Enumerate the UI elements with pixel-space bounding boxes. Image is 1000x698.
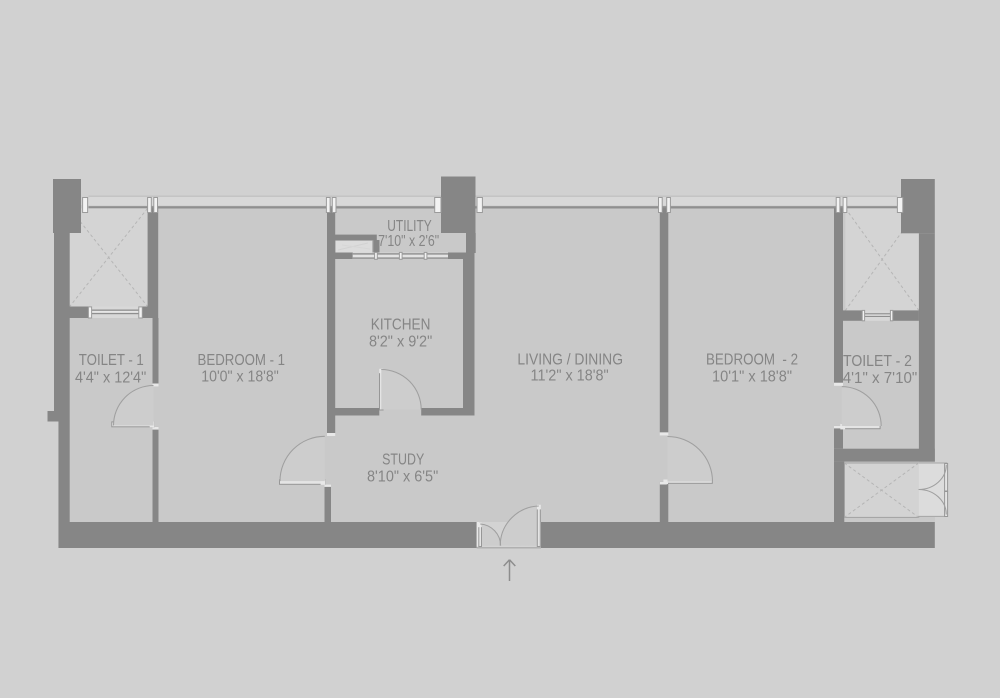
svg-text:TOILET - 1: TOILET - 1 [79, 352, 144, 369]
svg-text:BEDROOM - 1: BEDROOM - 1 [198, 352, 286, 369]
svg-text:8'2" x 9'2": 8'2" x 9'2" [369, 333, 432, 350]
svg-text:10'1" x 18'8": 10'1" x 18'8" [712, 369, 792, 386]
svg-text:4'4" x 12'4": 4'4" x 12'4" [75, 370, 146, 387]
svg-text:BEDROOM - 2: BEDROOM - 2 [706, 351, 798, 368]
svg-text:LIVING / DINING: LIVING / DINING [517, 351, 623, 368]
svg-text:4'1" x 7'10": 4'1" x 7'10" [843, 370, 918, 387]
svg-text:STUDY: STUDY [382, 451, 424, 468]
svg-text:KITCHEN: KITCHEN [371, 316, 431, 333]
svg-text:11'2" x 18'8": 11'2" x 18'8" [531, 368, 609, 385]
svg-text:7'10" x 2'6": 7'10" x 2'6" [378, 233, 439, 250]
svg-text:TOILET - 2: TOILET - 2 [843, 353, 912, 370]
svg-text:8'10" x 6'5": 8'10" x 6'5" [367, 468, 438, 485]
svg-text:10'0" x 18'8": 10'0" x 18'8" [201, 369, 279, 386]
